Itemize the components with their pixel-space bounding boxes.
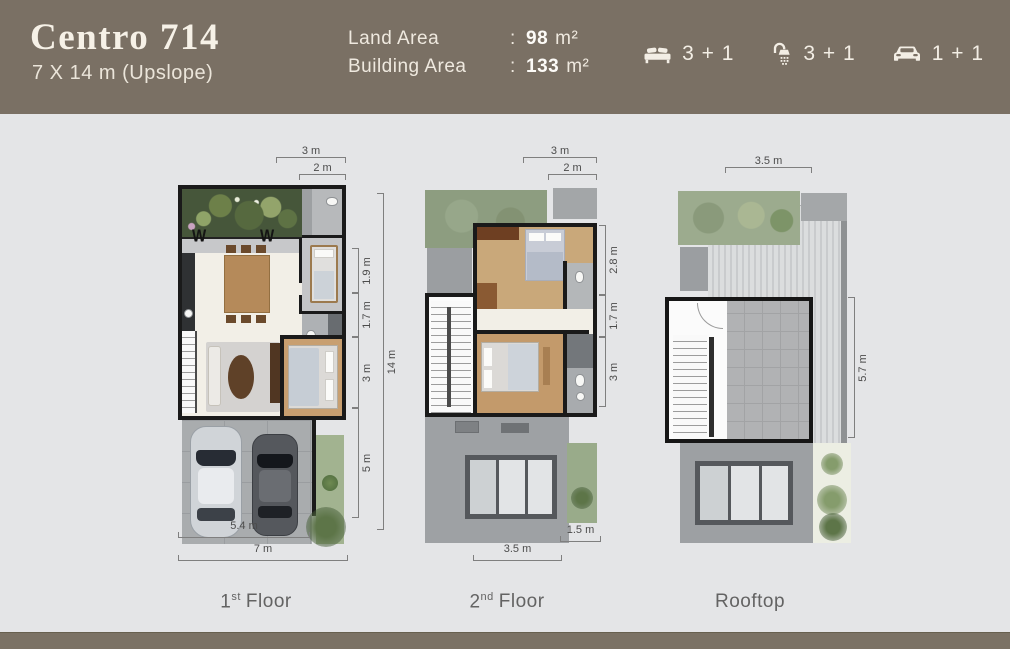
land-area-row: Land Area : 98 m² bbox=[348, 28, 589, 56]
coffee-table bbox=[228, 355, 254, 399]
toilet bbox=[326, 197, 338, 206]
windshield bbox=[257, 454, 293, 468]
dim-label: 3.5 m bbox=[473, 543, 562, 555]
toilet bbox=[575, 271, 584, 283]
dim-bracket bbox=[599, 337, 606, 407]
dim-f1-bottom-5.4m: 5.4 m bbox=[178, 520, 310, 538]
window-divider bbox=[759, 466, 762, 520]
garden-strip bbox=[813, 443, 851, 543]
pillow bbox=[314, 249, 334, 258]
bed bbox=[310, 245, 338, 303]
dim-f1-right-3: 3 m bbox=[352, 337, 359, 408]
dim-f2-right-1: 2.8 m bbox=[599, 225, 606, 295]
dim-bracket bbox=[178, 555, 348, 561]
second-floor-plan bbox=[425, 185, 597, 544]
dim-label: 14 m bbox=[386, 349, 398, 373]
floor-label-2nd: 2ndFloor bbox=[452, 591, 562, 613]
chair bbox=[256, 315, 266, 323]
dim-roof-top-3.5m: 3.5 m bbox=[725, 155, 812, 173]
dim-bracket bbox=[377, 193, 384, 530]
bed bbox=[481, 342, 539, 392]
floor-ordinal: 2 bbox=[469, 591, 480, 612]
stairs bbox=[673, 335, 707, 439]
skylight-window bbox=[695, 461, 793, 525]
dim-bracket bbox=[352, 408, 359, 518]
windshield bbox=[196, 450, 236, 466]
pillow bbox=[484, 370, 492, 388]
dim-bracket bbox=[473, 555, 562, 561]
dim-label: 1.7 m bbox=[608, 302, 620, 330]
pillow bbox=[325, 351, 334, 373]
dim-f1-right-1: 1.9 m bbox=[352, 248, 359, 293]
dim-label: 5.7 m bbox=[857, 354, 869, 382]
separator: : bbox=[510, 28, 526, 50]
dim-f1-top-2m: 2 m bbox=[299, 162, 346, 180]
dim-label: 1.9 m bbox=[361, 257, 373, 285]
floor-ordinal: 1 bbox=[220, 591, 231, 612]
first-floor-plan: W W bbox=[178, 185, 346, 544]
blanket bbox=[314, 271, 334, 299]
dim-f2-bottom-3.5m: 3.5 m bbox=[473, 543, 562, 561]
dim-f1-bottom-7m: 7 m bbox=[178, 543, 348, 561]
dim-bracket bbox=[352, 248, 359, 293]
dim-roof-right-5.7m: 5.7 m bbox=[848, 297, 855, 438]
bed-icon bbox=[643, 43, 672, 66]
blanket bbox=[289, 348, 319, 406]
kitchen-sink bbox=[184, 309, 193, 318]
bathroom-count: 3 + 1 bbox=[803, 42, 855, 66]
skylight-window bbox=[465, 455, 557, 519]
dim-bracket bbox=[560, 536, 601, 542]
window-symbol: W bbox=[192, 229, 206, 245]
pillow bbox=[484, 348, 492, 366]
dim-label: 3 m bbox=[523, 145, 597, 157]
bush bbox=[571, 487, 593, 509]
dim-label: 3 m bbox=[361, 363, 373, 381]
dim-f2-top-3m: 3 m bbox=[523, 145, 597, 163]
dim-bracket bbox=[548, 174, 597, 180]
feature-stats: 3 + 1 3 + 1 1 + 1 bbox=[643, 42, 984, 66]
carport-count: 1 + 1 bbox=[932, 42, 984, 66]
sink bbox=[576, 392, 585, 401]
dim-f2-top-2m: 2 m bbox=[548, 162, 597, 180]
dining-set bbox=[222, 245, 272, 325]
floor-word: Floor bbox=[246, 591, 292, 612]
wardrobe bbox=[477, 283, 497, 309]
dim-bracket bbox=[599, 225, 606, 295]
rear-window bbox=[258, 506, 292, 518]
dim-label: 7 m bbox=[178, 543, 348, 555]
stairwell bbox=[425, 293, 477, 417]
garage-stat: 1 + 1 bbox=[892, 42, 984, 66]
car-icon bbox=[892, 43, 922, 65]
window-divider bbox=[496, 460, 499, 514]
separator: : bbox=[510, 56, 526, 78]
dim-f2-right-2: 1.7 m bbox=[599, 295, 606, 337]
floor-label-rooftop: Rooftop bbox=[695, 591, 805, 613]
dim-bracket bbox=[725, 167, 812, 173]
window-pane bbox=[700, 466, 728, 520]
dim-bracket bbox=[352, 293, 359, 337]
dim-label: 2 m bbox=[548, 162, 597, 174]
shower-icon bbox=[770, 42, 793, 66]
bush bbox=[306, 507, 346, 547]
bush bbox=[817, 485, 847, 515]
bed bbox=[288, 345, 338, 409]
page-title: Centro 714 bbox=[30, 16, 220, 59]
dim-f2-bottom-1.5m: 1.5 m bbox=[560, 524, 601, 542]
desk bbox=[477, 227, 519, 240]
dim-label: 3.5 m bbox=[725, 155, 812, 167]
dim-label: 1.5 m bbox=[560, 524, 601, 536]
stairs bbox=[182, 331, 197, 413]
dim-bracket bbox=[352, 337, 359, 408]
window-symbol: W bbox=[260, 229, 274, 245]
dining-table bbox=[224, 255, 270, 313]
bench bbox=[543, 347, 550, 385]
floor-ordinal-suffix: st bbox=[231, 591, 241, 603]
window-pane bbox=[470, 460, 496, 514]
dim-label: 2 m bbox=[299, 162, 346, 174]
floor-label-1st: 1stFloor bbox=[201, 591, 311, 613]
bush bbox=[821, 453, 843, 475]
building-area-unit: m² bbox=[566, 56, 589, 78]
dim-label: 1.7 m bbox=[361, 301, 373, 329]
grass-strip bbox=[567, 443, 597, 523]
concrete-ledge bbox=[801, 193, 847, 221]
floorplan-sheet: Centro 714 7 X 14 m (Upslope) Land Area … bbox=[0, 0, 1010, 649]
land-area-unit: m² bbox=[555, 28, 578, 50]
dim-label: 3 m bbox=[276, 145, 346, 157]
window-divider bbox=[728, 466, 731, 520]
kitchen-counter bbox=[182, 253, 195, 331]
wall bbox=[299, 238, 302, 283]
building-area-row: Building Area : 133 m² bbox=[348, 56, 589, 84]
area-summary: Land Area : 98 m² Building Area : 133 m² bbox=[348, 28, 589, 84]
planter bbox=[501, 423, 529, 433]
stair-railing bbox=[447, 307, 451, 407]
pillow bbox=[546, 233, 561, 241]
shower-tiles bbox=[302, 189, 312, 236]
concrete-ledge bbox=[680, 247, 708, 291]
floor-word: Rooftop bbox=[715, 591, 785, 612]
bathroom bbox=[567, 334, 593, 413]
dim-label: 5.4 m bbox=[178, 520, 310, 532]
footer-bar bbox=[0, 632, 1010, 649]
dim-f1-right-total: 14 m bbox=[377, 193, 384, 530]
floor-word: Floor bbox=[499, 591, 545, 612]
shower-tiles bbox=[567, 334, 593, 368]
dim-f1-right-4: 5 m bbox=[352, 408, 359, 518]
blanket bbox=[508, 344, 538, 390]
door-arc bbox=[697, 303, 723, 329]
dim-bracket bbox=[848, 297, 855, 438]
chair bbox=[241, 245, 251, 253]
chair bbox=[226, 245, 236, 253]
dim-label: 5 m bbox=[361, 454, 373, 472]
bathroom-stat: 3 + 1 bbox=[770, 42, 855, 66]
bed bbox=[525, 229, 565, 281]
dim-f2-right-3: 3 m bbox=[599, 337, 606, 407]
blanket bbox=[527, 252, 563, 280]
stairwell bbox=[665, 297, 731, 443]
stair-railing bbox=[709, 337, 714, 437]
dim-label: 2.8 m bbox=[608, 246, 620, 274]
terrace bbox=[727, 297, 813, 443]
stairs bbox=[431, 301, 471, 413]
dim-bracket bbox=[178, 532, 310, 538]
bathroom bbox=[567, 263, 593, 309]
building-area-label: Building Area bbox=[348, 56, 510, 78]
car-roof bbox=[259, 470, 291, 502]
dim-f1-right-2: 1.7 m bbox=[352, 293, 359, 337]
toilet bbox=[575, 374, 585, 387]
pillow bbox=[529, 233, 544, 241]
dim-f1-top-3m: 3 m bbox=[276, 145, 346, 163]
page-subtitle: 7 X 14 m (Upslope) bbox=[32, 62, 213, 85]
land-area-label: Land Area bbox=[348, 28, 510, 50]
bush bbox=[819, 513, 847, 541]
land-area-value: 98 bbox=[526, 28, 548, 50]
header-bar: Centro 714 7 X 14 m (Upslope) Land Area … bbox=[0, 0, 1010, 114]
chair bbox=[256, 245, 266, 253]
chair bbox=[241, 315, 251, 323]
bedroom-count: 3 + 1 bbox=[682, 42, 734, 66]
tree bbox=[322, 475, 338, 491]
tv-console bbox=[270, 343, 280, 403]
concrete-ledge bbox=[553, 188, 597, 219]
concrete-ledge bbox=[427, 248, 472, 295]
sofa bbox=[208, 346, 221, 406]
tree-canopy bbox=[678, 191, 800, 245]
dim-label: 3 m bbox=[608, 363, 620, 381]
chair bbox=[226, 315, 236, 323]
dim-bracket bbox=[599, 295, 606, 337]
window-divider bbox=[525, 460, 528, 514]
bathroom bbox=[302, 189, 342, 236]
planter bbox=[455, 421, 479, 433]
car-roof bbox=[198, 468, 234, 504]
bedroom-stat: 3 + 1 bbox=[643, 42, 734, 66]
pillow bbox=[325, 379, 334, 401]
building-area-value: 133 bbox=[526, 56, 559, 78]
floor2-outline bbox=[473, 223, 597, 417]
floor-ordinal-suffix: nd bbox=[481, 591, 494, 603]
dim-bracket bbox=[299, 174, 346, 180]
